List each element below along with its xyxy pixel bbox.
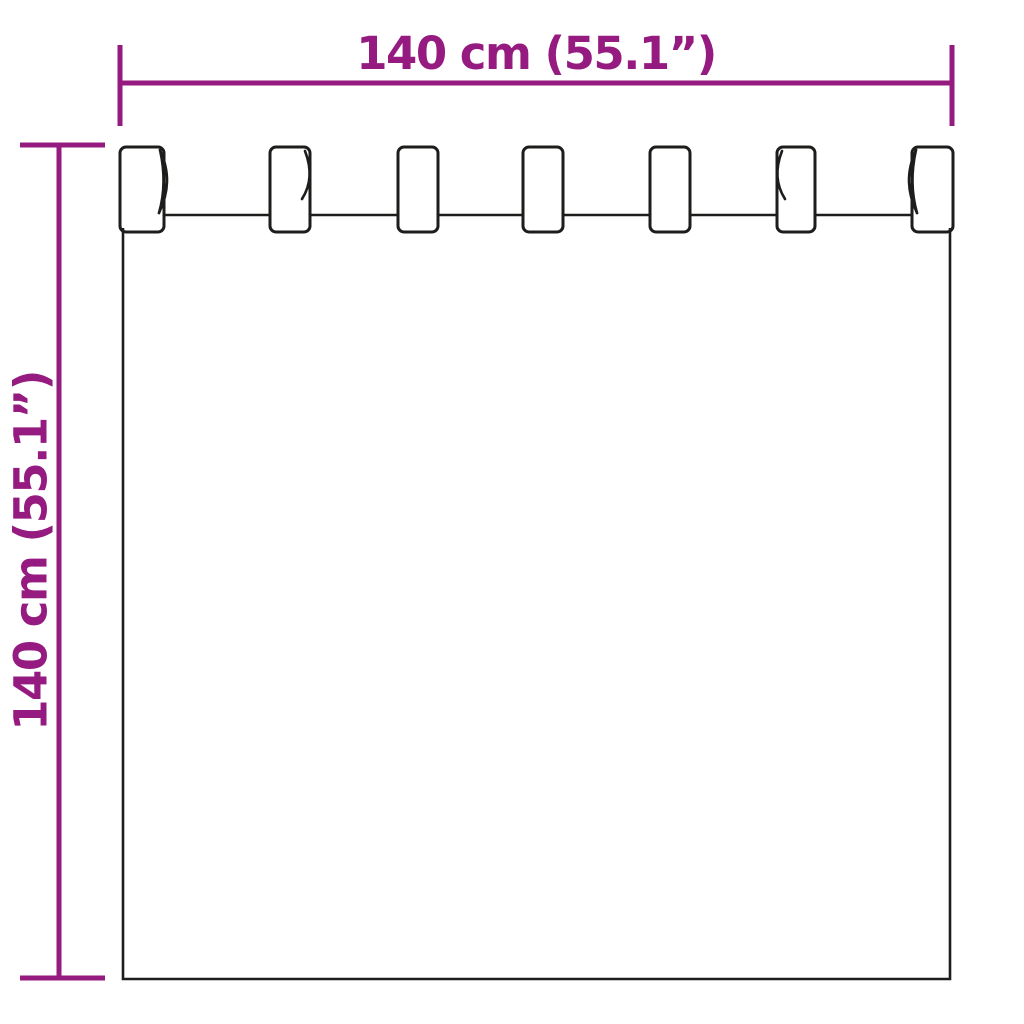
curtain-diagram-svg <box>0 0 1024 1024</box>
height-dimension-label: 140 cm (55.1”) <box>9 371 54 731</box>
tab-loop <box>912 147 953 232</box>
product-dimension-diagram: 140 cm (55.1”) 140 cm (55.1”) <box>0 0 1024 1024</box>
width-dimension-label: 140 cm (55.1”) <box>120 31 952 76</box>
tab-loop <box>120 147 164 232</box>
tab-loop <box>777 147 815 232</box>
tab-loops <box>120 147 953 232</box>
tab-loop <box>523 147 563 232</box>
tab-loop <box>398 147 438 232</box>
tab-loop <box>270 147 310 232</box>
tab-loop <box>650 147 690 232</box>
curtain-panel-outline <box>123 228 950 979</box>
